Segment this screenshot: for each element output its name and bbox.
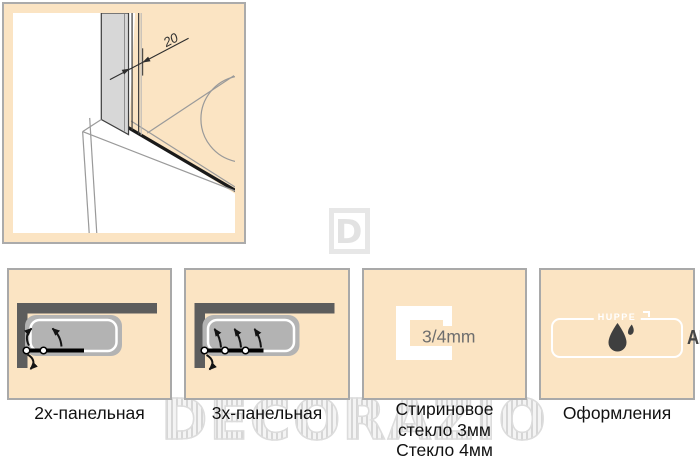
hinge-icon — [23, 347, 30, 354]
profile-section-svg: 20 — [13, 13, 235, 233]
wall-top-icon — [17, 303, 157, 314]
caption-glass: Стириновое стекло 3мм Стекло 4мм — [362, 399, 527, 461]
caption-coating: Оформления — [539, 403, 695, 424]
hinge-icon — [242, 347, 249, 354]
caption-glass-line1: Стириновое — [362, 399, 527, 420]
glass-pane-area — [129, 13, 235, 194]
panel-3x-diagram — [184, 268, 350, 400]
caption-2x: 2х-панельная — [7, 403, 172, 424]
anti-plaque-badge: HUPPE ANTI-PLAQUE — [551, 318, 683, 358]
hinge-icon — [40, 347, 47, 354]
caption-glass-line3: Стекло 4мм — [362, 440, 527, 461]
tub-corner-line — [83, 119, 102, 131]
tub-front-edge — [83, 132, 90, 233]
trademark-mark-icon — [643, 311, 650, 317]
hinge-icon — [201, 347, 208, 354]
watermark-logo: D — [329, 208, 370, 254]
wall-top-icon — [195, 303, 335, 314]
watermark-logo-letter: D — [335, 215, 362, 248]
water-drop-icon — [558, 320, 686, 356]
glass-thickness-label: 3/4mm — [422, 327, 475, 347]
bathtub-3panel-svg — [186, 270, 348, 398]
caption-glass-line2: стекло 3мм — [362, 420, 527, 441]
hinge-icon — [222, 347, 229, 354]
panel-anti-plaque: HUPPE ANTI-PLAQUE — [539, 268, 695, 400]
bathtub-2panel-svg — [9, 270, 170, 398]
detail-drawing-frame: 20 — [2, 2, 246, 244]
anti-plaque-label: ANTI-PLAQUE — [687, 327, 700, 350]
panel-2x-diagram — [7, 268, 172, 400]
glass-profile-drawing: 20 — [13, 13, 235, 233]
caption-3x: 3х-панельная — [184, 403, 350, 424]
huppe-brand-label: HUPPE — [594, 313, 641, 322]
panel-glass-thickness: 3/4mm — [362, 268, 527, 400]
glass-channel-svg: 3/4mm — [364, 270, 525, 398]
product-spec-sheet: 20 D — [0, 0, 700, 464]
